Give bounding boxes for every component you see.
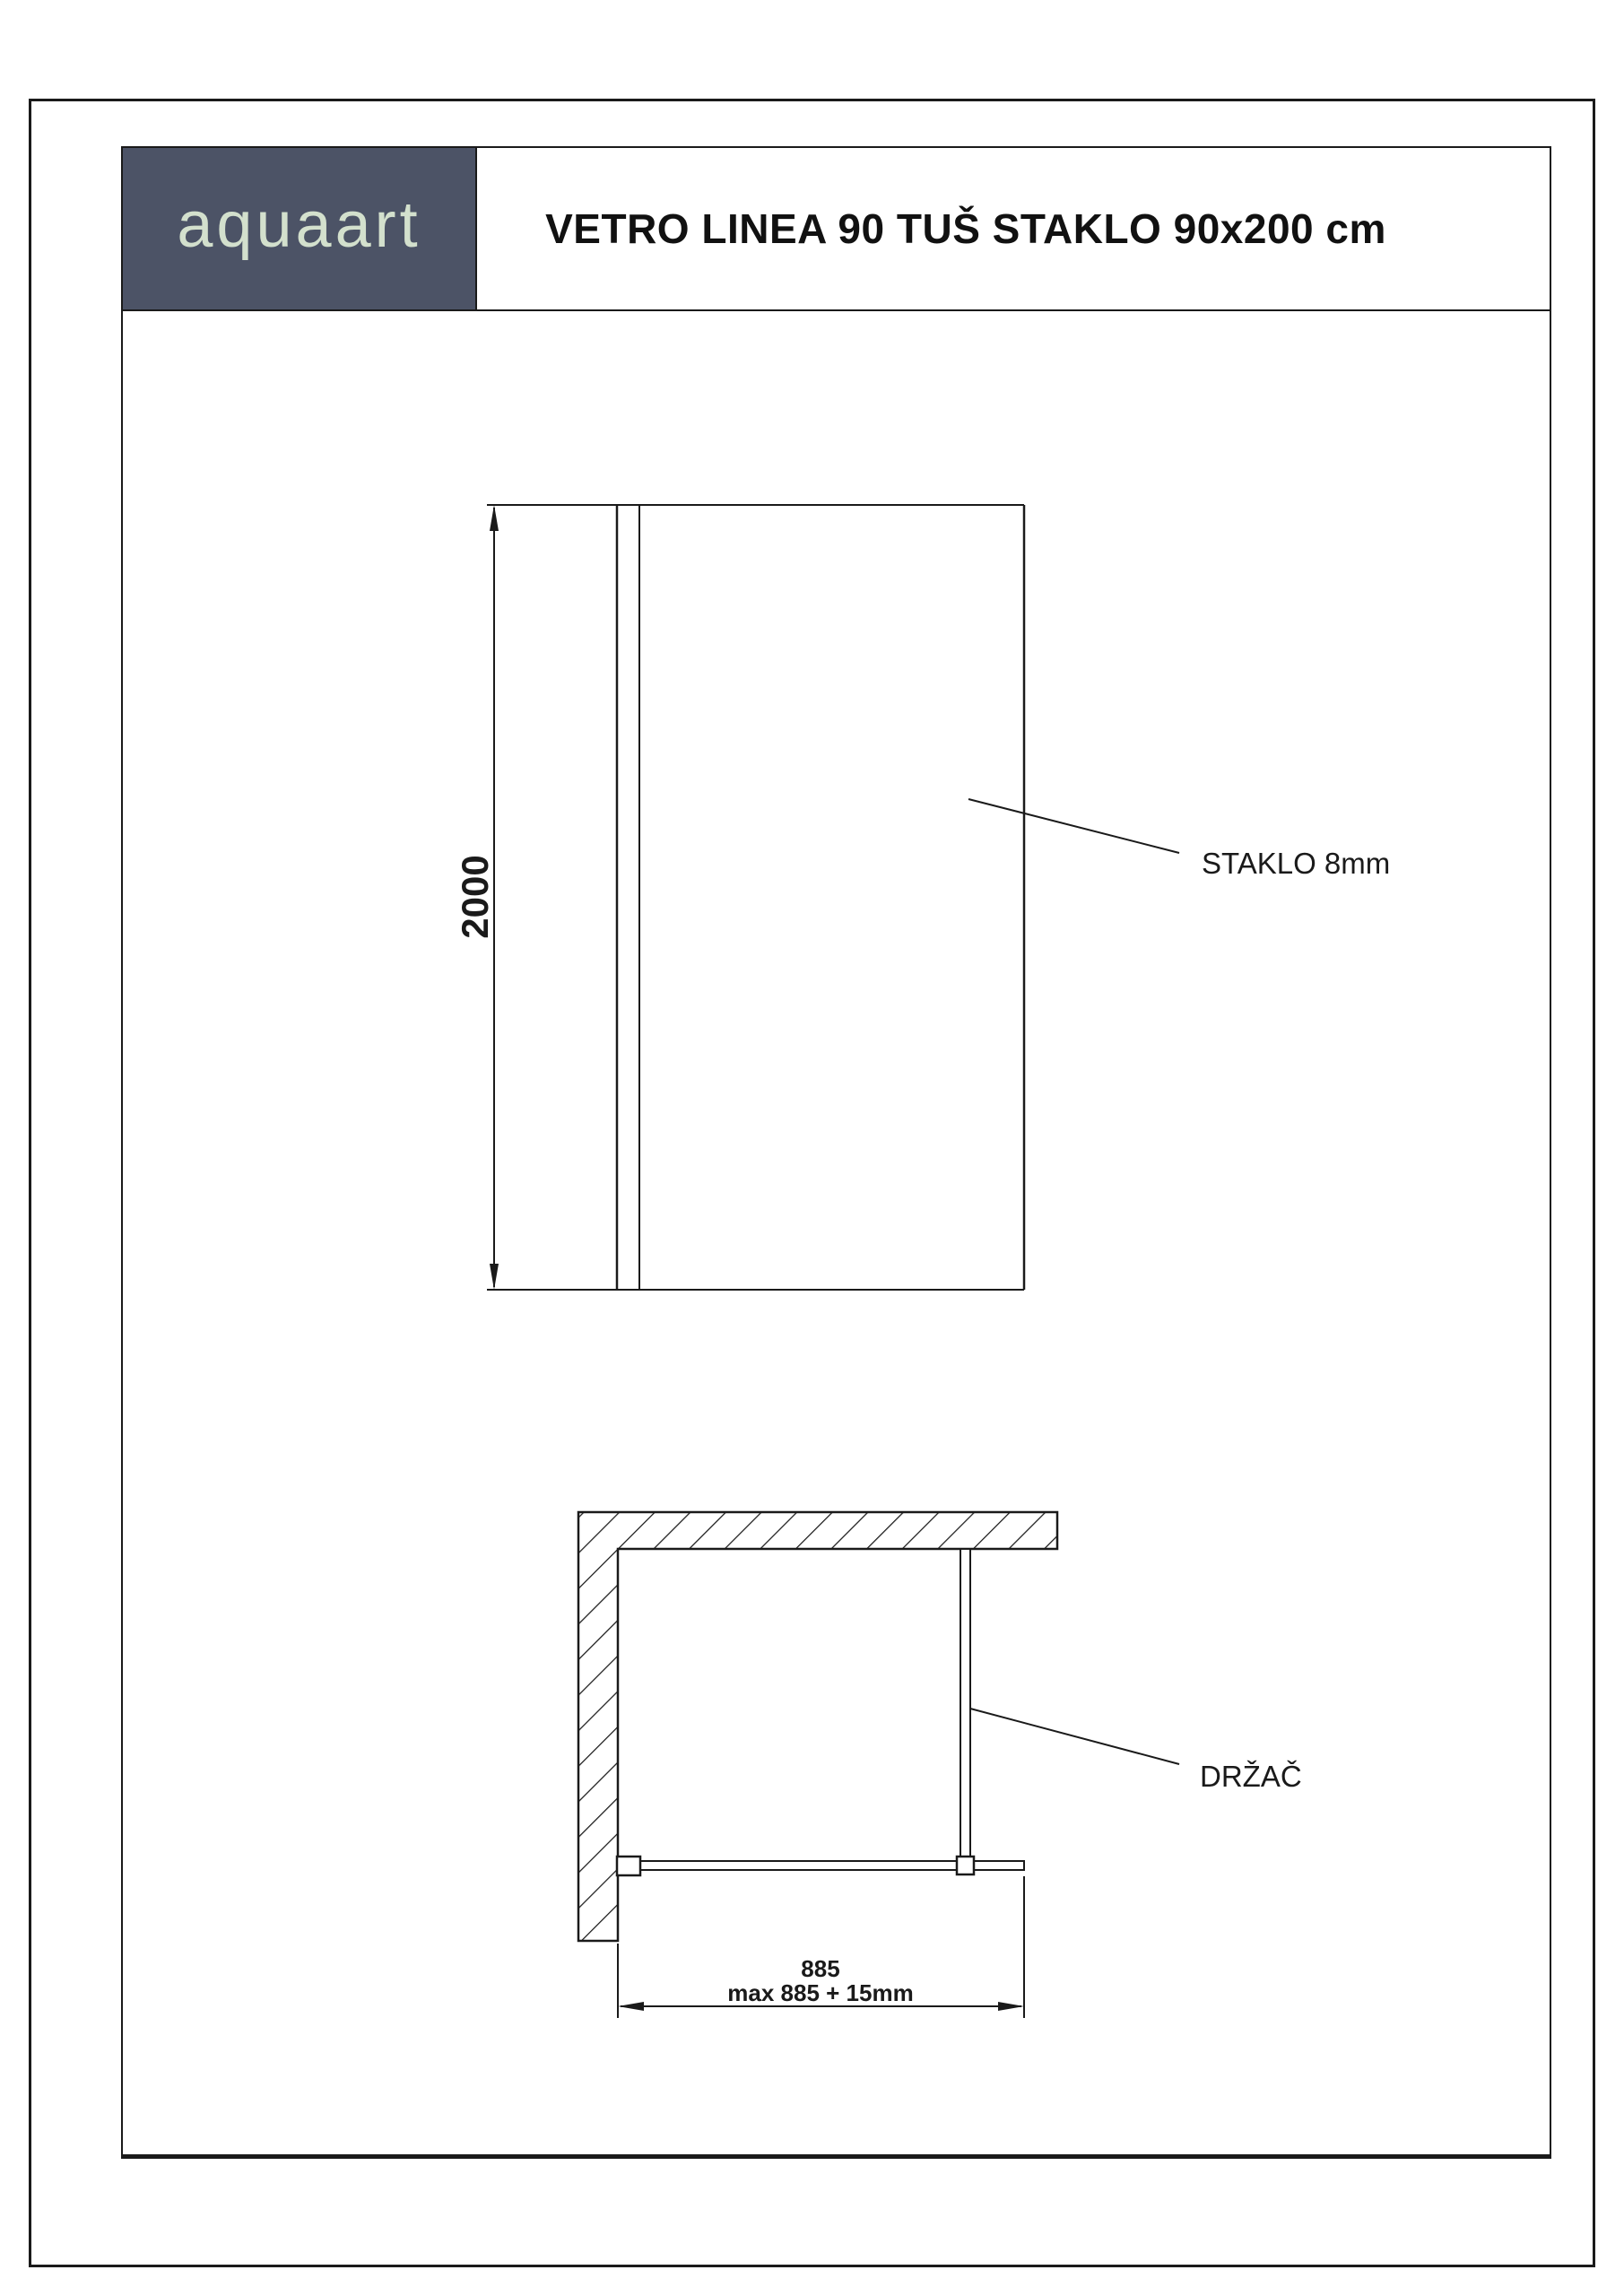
title-bar: VETRO LINEA 90 TUŠ STAKLO 90x200 cm (475, 146, 1551, 311)
drawing-sheet: 2000 STAKLO 8mm DRŽAČ 885 max (0, 0, 1624, 2296)
page-title: VETRO LINEA 90 TUŠ STAKLO 90x200 cm (545, 204, 1386, 253)
logo-box: aquaart (121, 146, 477, 311)
drawing-frame (121, 309, 1551, 2159)
logo-text: aquaart (177, 188, 421, 269)
